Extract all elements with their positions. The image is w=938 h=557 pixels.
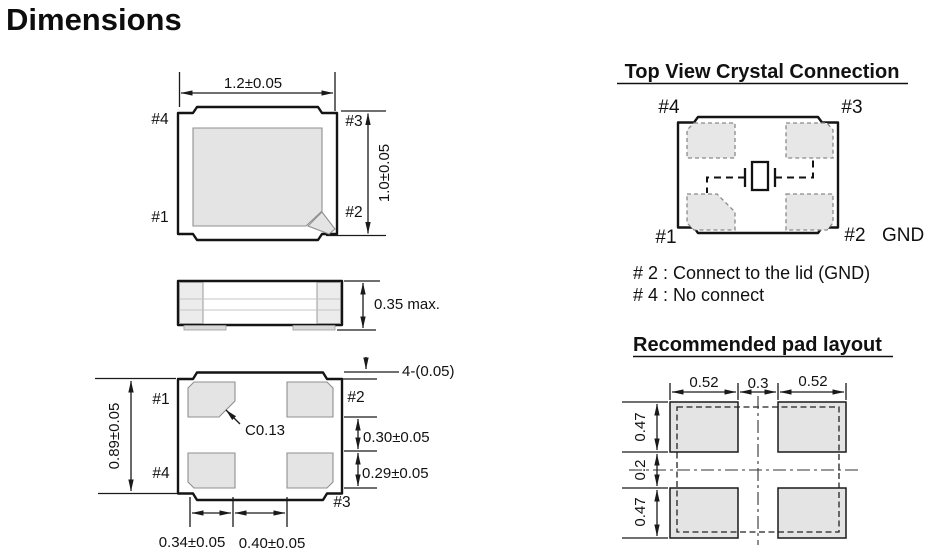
layout-pad-bottom-left bbox=[670, 488, 738, 538]
pad-layout-dim-row1: 0.47 bbox=[632, 412, 649, 441]
side-view-right-footpad bbox=[293, 326, 335, 331]
pad-spacing-lower-label: 0.29±0.05 bbox=[362, 465, 429, 482]
pad-layout-dim-gap-v: 0.2 bbox=[632, 460, 649, 481]
pad-width-left-label: 0.34±0.05 bbox=[159, 534, 226, 551]
note-pin-2: # 2 : Connect to the lid (GND) bbox=[633, 263, 870, 283]
top-view-width-dimension: 1.2±0.05 bbox=[180, 72, 336, 111]
chamfer-label: C0.13 bbox=[245, 422, 285, 439]
side-view-drawing: 0.35 max. bbox=[178, 281, 440, 330]
connection-pin-4-label: #4 bbox=[658, 97, 680, 118]
top-view-height-dim-label: 1.0±0.05 bbox=[376, 144, 393, 202]
side-view-thickness-label: 0.35 max. bbox=[374, 296, 440, 313]
pad-layout-dim-col1: 0.52 bbox=[689, 374, 718, 391]
pad-width-right-label: 0.40±0.05 bbox=[239, 535, 306, 552]
top-view-pin-3-label: #3 bbox=[345, 113, 362, 130]
bottom-view-bottom-dimensions: 0.34±0.05 0.40±0.05 bbox=[159, 497, 306, 552]
dimensions-figure: 1.2±0.05 1.0±0.05 #4 #3 #1 #2 bbox=[0, 0, 938, 557]
pad-layout-dim-gap-h: 0.3 bbox=[748, 375, 769, 392]
bottom-view-pad-3 bbox=[287, 453, 333, 488]
bottom-view-pad-2 bbox=[287, 382, 333, 417]
side-view-thickness-dimension: 0.35 max. bbox=[337, 281, 440, 330]
crystal-connection-title: Top View Crystal Connection bbox=[625, 61, 900, 83]
side-view-left-cap bbox=[180, 283, 204, 324]
connection-pad-3 bbox=[786, 123, 833, 158]
top-view-lid bbox=[193, 128, 322, 226]
corner-notch-label: 4-(0.05) bbox=[402, 363, 455, 380]
layout-pad-bottom-right bbox=[778, 488, 846, 538]
connection-pad-2 bbox=[786, 194, 833, 230]
bottom-view-right-dimensions: 0.30±0.05 0.29±0.05 bbox=[344, 417, 430, 488]
pad-layout-drawing: Recommended pad layout 0.52 0.3 0.52 bbox=[622, 334, 893, 545]
note-pin-4: # 4 : No connect bbox=[633, 285, 764, 305]
corner-notch-callout: 4-(0.05) bbox=[343, 357, 455, 380]
connection-pin-1-label: #1 bbox=[655, 227, 676, 248]
pad-layout-dim-col2: 0.52 bbox=[798, 373, 827, 390]
bottom-view-height-label: 0.89±0.05 bbox=[106, 403, 123, 470]
connection-pad-4 bbox=[687, 123, 735, 158]
connection-pin-2-label: #2 bbox=[844, 225, 865, 246]
top-view-pin-4-label: #4 bbox=[151, 111, 169, 128]
pad-layout-title: Recommended pad layout bbox=[633, 334, 882, 356]
layout-pad-top-left bbox=[670, 402, 738, 452]
pad-layout-top-dimensions: 0.52 0.3 0.52 bbox=[670, 373, 846, 400]
bottom-view-pin-3-label: #3 bbox=[333, 494, 350, 511]
layout-pad-top-right bbox=[778, 402, 846, 452]
bottom-view-pin-1-label: #1 bbox=[152, 391, 169, 408]
datasheet-page: Dimensions 1.2±0.05 1.0± bbox=[0, 0, 938, 557]
crystal-connection-diagram: Top View Crystal Connection #4 #3 #1 #2 … bbox=[617, 61, 924, 305]
bottom-view-pin-4-label: #4 bbox=[152, 465, 170, 482]
top-view-drawing: 1.2±0.05 1.0±0.05 #4 #3 #1 #2 bbox=[151, 72, 393, 240]
bottom-view-drawing: C0.13 4-(0.05) 0.89±0.05 bbox=[95, 357, 455, 552]
top-view-pin-1-label: #1 bbox=[151, 209, 168, 226]
bottom-view-pin-2-label: #2 bbox=[347, 389, 364, 406]
gnd-label: GND bbox=[882, 225, 924, 246]
side-view-right-cap bbox=[317, 283, 341, 324]
top-view-width-dim-label: 1.2±0.05 bbox=[224, 75, 282, 92]
bottom-view-pad-4 bbox=[188, 453, 235, 488]
side-view-left-footpad bbox=[184, 326, 226, 331]
pad-layout-dim-row2: 0.47 bbox=[632, 497, 649, 526]
connection-pin-3-label: #3 bbox=[841, 97, 862, 118]
top-view-pin-2-label: #2 bbox=[345, 204, 362, 221]
pad-spacing-upper-label: 0.30±0.05 bbox=[363, 429, 430, 446]
